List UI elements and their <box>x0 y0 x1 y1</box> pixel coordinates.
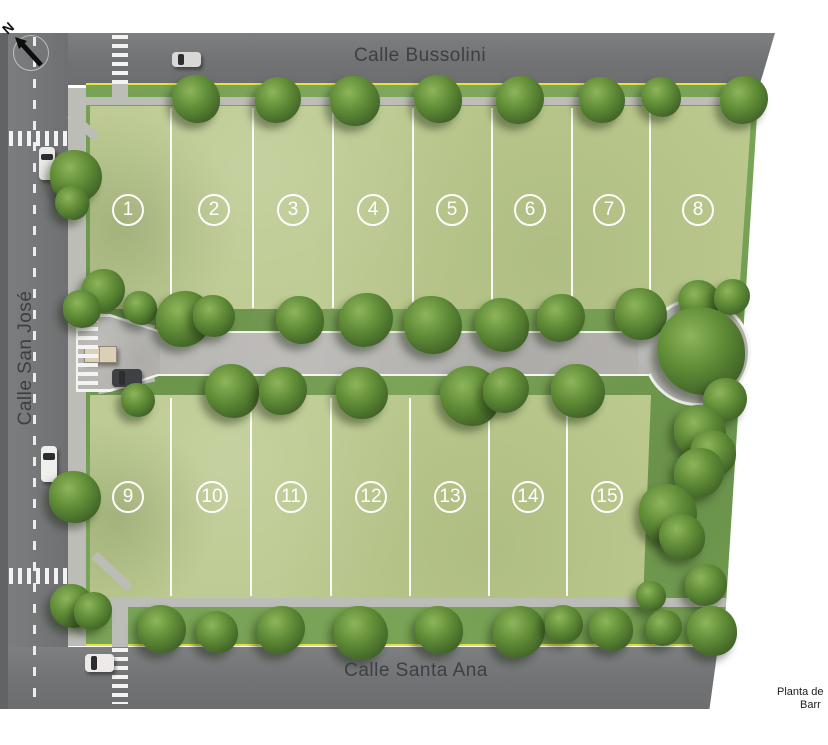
tree-icon <box>687 606 737 656</box>
lot-marker: 8 <box>682 194 714 226</box>
tree-icon <box>257 606 305 654</box>
tree-icon <box>537 294 585 342</box>
site-plan: 123456789101112131415 N Calle Bussolini … <box>0 0 828 745</box>
tree-icon <box>545 605 583 643</box>
car-windshield <box>91 656 97 670</box>
tree-icon <box>336 367 388 419</box>
tree-icon <box>339 293 393 347</box>
tree-icon <box>196 611 238 653</box>
tree-icon <box>334 606 388 660</box>
tree-icon <box>659 514 705 560</box>
tree-icon <box>636 581 666 611</box>
tree-icon <box>415 606 463 654</box>
tree-icon <box>589 607 633 651</box>
lot-marker: 1 <box>112 194 144 226</box>
lot-marker: 15 <box>591 481 623 513</box>
over-layer: 123456789101112131415 <box>0 0 828 745</box>
lot-marker: 4 <box>357 194 389 226</box>
tree-icon <box>138 605 186 653</box>
plan-caption: Planta de Barr <box>777 686 823 712</box>
street-label-santa-ana: Calle Santa Ana <box>266 660 566 682</box>
tree-icon <box>55 186 89 220</box>
caption-line-2: Barr <box>800 699 823 712</box>
car <box>172 52 201 67</box>
lot-marker: 2 <box>198 194 230 226</box>
tree-icon <box>475 298 529 352</box>
car-windshield <box>178 54 184 65</box>
tree-icon <box>551 364 605 418</box>
tree-icon <box>63 290 101 328</box>
lot-marker: 13 <box>434 481 466 513</box>
car <box>85 654 114 672</box>
lot-marker: 6 <box>514 194 546 226</box>
tree-icon <box>172 75 220 123</box>
lot-marker: 10 <box>196 481 228 513</box>
crosswalk <box>112 648 128 704</box>
tree-icon <box>720 76 768 124</box>
lot-marker: 9 <box>112 481 144 513</box>
street-label-bussolini: Calle Bussolini <box>270 45 570 67</box>
tree-icon <box>646 610 682 646</box>
lot-marker: 11 <box>275 481 307 513</box>
car-windshield <box>41 154 53 160</box>
tree-icon <box>496 76 544 124</box>
tree-icon <box>714 279 750 315</box>
car-windshield <box>119 371 125 385</box>
lot-marker: 7 <box>593 194 625 226</box>
lot-marker: 3 <box>277 194 309 226</box>
tree-icon <box>205 364 259 418</box>
tree-icon <box>685 564 727 606</box>
crosswalk <box>78 318 98 390</box>
tree-icon <box>493 606 545 658</box>
car <box>41 446 57 482</box>
tree-icon <box>330 76 380 126</box>
tree-icon <box>404 296 462 354</box>
lot-marker: 5 <box>436 194 468 226</box>
lot-marker: 14 <box>512 481 544 513</box>
crosswalk <box>112 35 128 84</box>
tree-icon <box>259 367 307 415</box>
tree-icon <box>121 383 155 417</box>
lot-marker: 12 <box>355 481 387 513</box>
tree-icon <box>276 296 324 344</box>
tree-icon <box>74 592 112 630</box>
tree-icon <box>483 367 529 413</box>
tree-icon <box>193 295 235 337</box>
caption-line-1: Planta de <box>777 686 823 699</box>
tree-icon <box>49 471 101 523</box>
tree-icon <box>123 291 157 325</box>
tree-icon <box>579 77 625 123</box>
tree-icon <box>255 77 301 123</box>
north-arrow-icon <box>8 30 54 76</box>
crosswalk <box>9 568 68 584</box>
car-windshield <box>43 453 55 459</box>
tree-icon <box>641 77 681 117</box>
tree-icon <box>414 75 462 123</box>
street-label-san-jose: Calle San José <box>15 278 37 438</box>
crosswalk <box>9 131 68 146</box>
